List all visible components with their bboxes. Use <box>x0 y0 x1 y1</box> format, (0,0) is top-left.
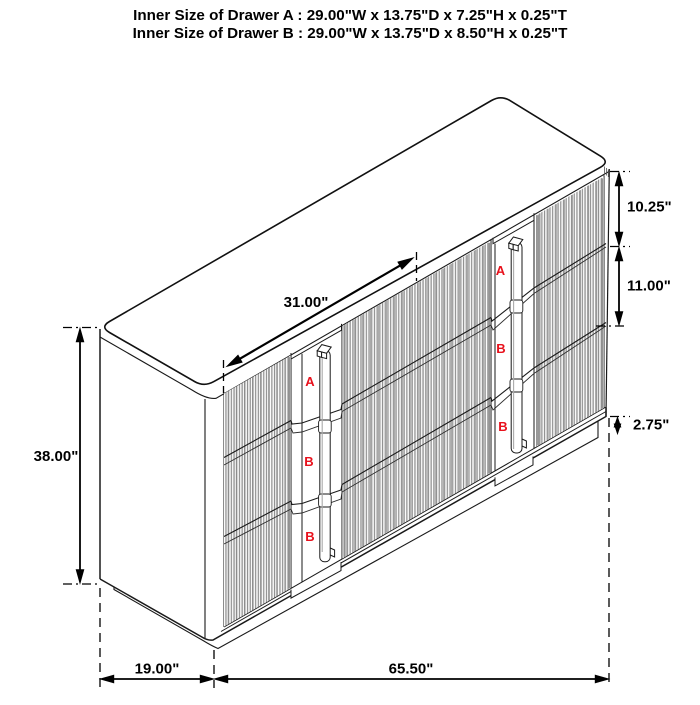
svg-text:B: B <box>496 341 505 356</box>
svg-text:65.50": 65.50" <box>389 661 434 678</box>
svg-text:B: B <box>498 419 507 434</box>
svg-text:2.75": 2.75" <box>633 417 669 434</box>
svg-text:A: A <box>496 263 506 278</box>
svg-text:A: A <box>305 374 315 389</box>
svg-text:19.00": 19.00" <box>135 661 180 678</box>
svg-text:B: B <box>305 529 314 544</box>
svg-text:11.00": 11.00" <box>627 278 671 295</box>
svg-text:B: B <box>304 454 313 469</box>
svg-text:10.25": 10.25" <box>627 199 672 216</box>
svg-text:38.00": 38.00" <box>34 448 79 465</box>
svg-text:31.00": 31.00" <box>284 294 329 311</box>
